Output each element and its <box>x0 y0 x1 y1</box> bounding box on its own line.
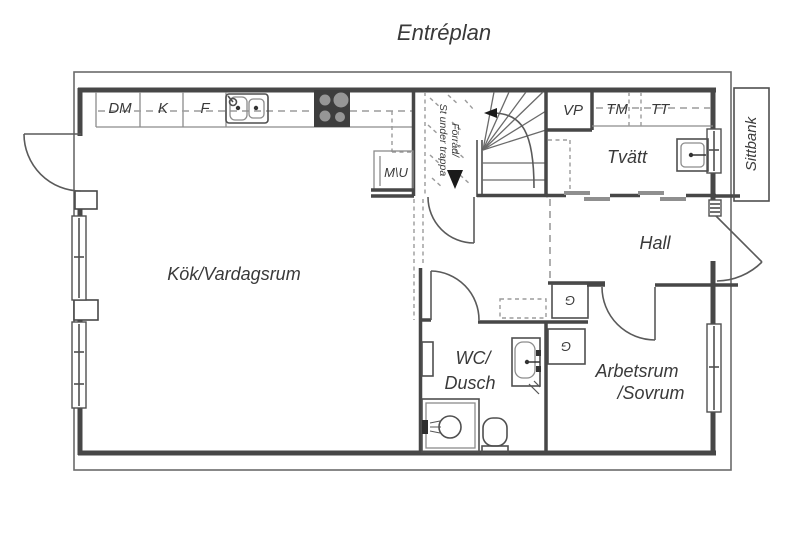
room-label-laundry: Tvätt <box>607 147 648 167</box>
sittbank-bench: Sittbank <box>734 88 769 201</box>
stair-walk-line <box>494 113 534 188</box>
window <box>707 129 721 173</box>
window <box>72 322 86 408</box>
storage-label-line2: St under trappa <box>437 104 449 177</box>
storage-label: Förråd/ St under trappa <box>437 104 461 177</box>
heat-pump-label: VP <box>563 102 583 119</box>
room-label-wc-line1: WC/ <box>456 348 493 368</box>
wardrobe-label: G <box>565 293 575 308</box>
door-swing-arc <box>717 262 762 281</box>
wardrobe-label: G <box>561 339 571 354</box>
wc-shower-room: WC/ Dusch <box>414 199 546 453</box>
storage-label-line1: Förråd/ <box>449 123 461 158</box>
toilet <box>482 418 508 453</box>
laundry-sink <box>677 139 708 171</box>
door-leaf <box>716 216 762 262</box>
room-label-workroom-line1: Arbetsrum <box>594 361 678 381</box>
dashed-hatch-box <box>500 299 546 318</box>
left-exterior-door <box>24 134 81 191</box>
kitchen-sink <box>226 94 268 123</box>
room-label-hall: Hall <box>639 233 671 253</box>
wardrobe-1: G <box>552 284 588 318</box>
shower <box>422 399 479 452</box>
wall-pier <box>75 191 97 209</box>
room-label-workroom-line2: /Sovrum <box>615 383 684 403</box>
wc-door <box>431 271 479 320</box>
door-swing-arc <box>431 271 479 320</box>
floorplan-page: Entréplan <box>0 0 793 546</box>
fridge-label: K <box>158 100 169 117</box>
wardrobe-2: G <box>548 329 585 364</box>
dryer-label: TT <box>651 101 671 118</box>
room-label-wc-line2: Dusch <box>444 373 495 393</box>
wall-pier <box>74 300 98 320</box>
window <box>72 216 86 300</box>
micro-oven-label: M\U <box>384 165 408 180</box>
window <box>707 324 721 412</box>
washing-machine-label: TM <box>606 101 628 118</box>
dishwasher-label: DM <box>108 100 132 117</box>
floorplan-svg: Entréplan <box>0 0 793 546</box>
wall-niche <box>422 342 433 376</box>
storage-under-stairs: Förråd/ St under trappa <box>425 92 474 243</box>
sliding-door <box>564 191 610 201</box>
workroom-door <box>602 287 655 340</box>
entrance-door <box>709 200 762 281</box>
stair-treads <box>482 92 546 180</box>
door-swing-arc <box>24 134 81 191</box>
door-swing-arc <box>602 287 655 340</box>
page-title: Entréplan <box>397 20 491 45</box>
sliding-door <box>638 191 686 201</box>
freezer-label: F <box>200 100 210 117</box>
stove <box>314 90 350 127</box>
kitchen-counter: DM K F M\U Kök/Var <box>96 90 414 284</box>
room-label-kitchen-livingroom: Kök/Vardagsrum <box>167 264 300 284</box>
laundry-room: VP TM TT Tvätt <box>546 90 716 201</box>
bench-label: Sittbank <box>743 115 760 171</box>
door-swing-arc <box>428 197 474 243</box>
washbasin <box>512 338 541 394</box>
stairs <box>477 92 548 197</box>
